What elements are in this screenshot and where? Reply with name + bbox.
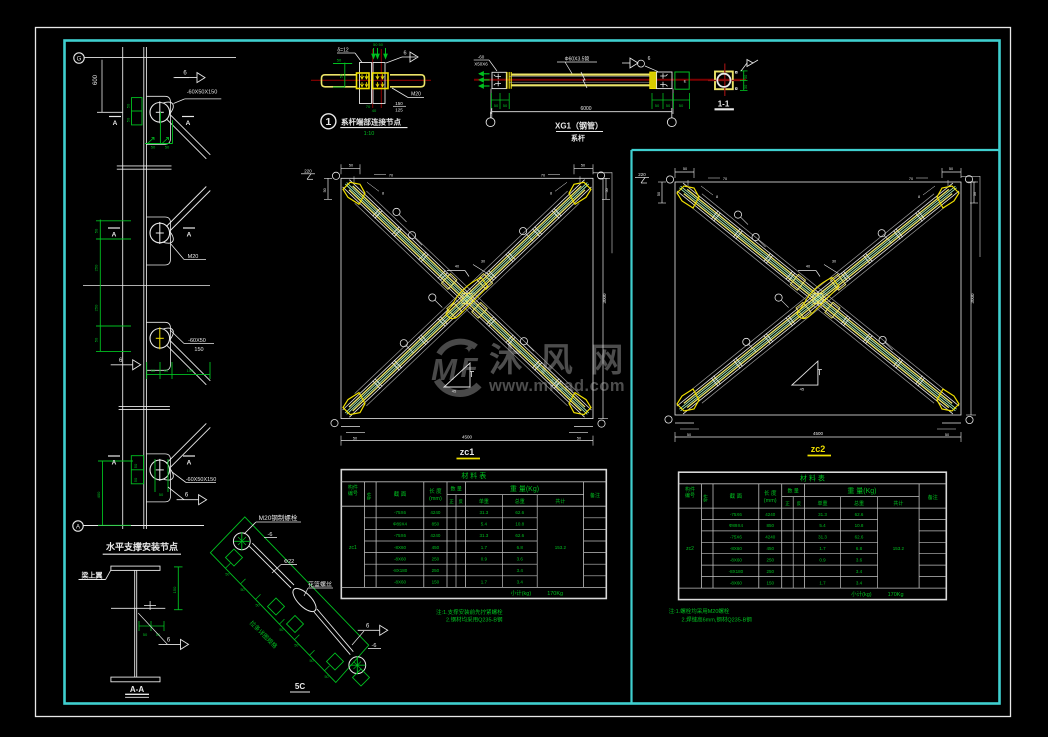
svg-text:正: 正 (449, 499, 454, 504)
svg-text:1:10: 1:10 (364, 131, 375, 137)
svg-text:31.3: 31.3 (818, 512, 827, 517)
svg-text:梁上翼: 梁上翼 (81, 571, 103, 580)
svg-text:E: E (684, 79, 687, 84)
svg-text:系杆端部连接节点: 系杆端部连接节点 (341, 116, 401, 126)
svg-text:X50X6: X50X6 (474, 62, 488, 67)
svg-text:50: 50 (657, 192, 661, 196)
svg-text:3.6: 3.6 (517, 556, 524, 561)
svg-text:截 面: 截 面 (394, 490, 407, 498)
svg-text:31.3: 31.3 (480, 533, 489, 538)
svg-text:数 量: 数 量 (451, 486, 462, 493)
svg-text:250: 250 (94, 304, 99, 311)
svg-text:水平支撑安装节点: 水平支撑安装节点 (106, 541, 178, 552)
svg-text:150: 150 (194, 347, 203, 353)
svg-text:小计(kg): 小计(kg) (511, 589, 532, 597)
svg-text:70: 70 (723, 177, 727, 181)
svg-text:共计: 共计 (555, 498, 565, 505)
svg-text:150: 150 (766, 580, 774, 585)
svg-text:50: 50 (241, 588, 245, 592)
svg-text:150: 150 (172, 586, 177, 593)
svg-text:6000: 6000 (580, 106, 591, 112)
svg-text:3.4: 3.4 (856, 580, 863, 585)
svg-text:M20钢制螺栓: M20钢制螺栓 (259, 513, 298, 522)
svg-text:零件: 零件 (702, 494, 708, 502)
svg-text:Φ89X4: Φ89X4 (729, 523, 744, 528)
svg-text:50: 50 (581, 163, 585, 167)
svg-text:总重: 总重 (854, 500, 864, 507)
svg-text:Φ60X3.5管: Φ60X3.5管 (565, 56, 590, 63)
svg-text:3.6: 3.6 (856, 557, 863, 562)
svg-text:总重: 总重 (515, 498, 525, 505)
svg-text:材 料 表: 材 料 表 (461, 471, 486, 480)
svg-text:170Kg: 170Kg (888, 592, 904, 598)
svg-text:构件: 构件 (685, 486, 695, 493)
svg-text:1-1: 1-1 (718, 100, 730, 109)
svg-text:反: 反 (459, 498, 464, 505)
svg-text:Φ89X4: Φ89X4 (393, 522, 408, 527)
svg-text:小计(kg): 小计(kg) (851, 590, 872, 598)
svg-text:50: 50 (159, 492, 164, 497)
svg-text:30: 30 (481, 260, 485, 264)
svg-text:XG1（钢管）: XG1（钢管） (555, 121, 603, 131)
svg-text:5.4: 5.4 (481, 522, 488, 527)
svg-text:-8X60: -8X60 (730, 557, 743, 562)
svg-text:4240: 4240 (765, 535, 776, 540)
svg-text:8: 8 (918, 195, 920, 199)
svg-text:50: 50 (353, 437, 357, 441)
svg-text:zc2: zc2 (811, 444, 826, 454)
svg-text:-8X60: -8X60 (394, 556, 407, 561)
svg-text:6: 6 (648, 56, 651, 62)
svg-text:50: 50 (973, 192, 977, 196)
svg-text:单重: 单重 (479, 498, 489, 505)
svg-text:50: 50 (151, 368, 156, 373)
svg-text:截 面: 截 面 (730, 492, 743, 500)
svg-text:注:1.螺栓均采用M20螺栓: 注:1.螺栓均采用M20螺栓 (669, 607, 730, 615)
svg-text:450: 450 (766, 546, 774, 551)
svg-text:4240: 4240 (765, 512, 776, 517)
svg-text:备注: 备注 (928, 494, 938, 501)
svg-text:150: 150 (395, 101, 403, 106)
svg-text:1.7: 1.7 (819, 546, 826, 551)
svg-text:-8X180: -8X180 (393, 568, 408, 573)
svg-text:50: 50 (655, 103, 660, 108)
svg-text:50: 50 (126, 103, 131, 108)
svg-text:构件: 构件 (348, 484, 358, 491)
svg-text:220: 220 (304, 168, 312, 173)
svg-text:M20: M20 (411, 92, 421, 98)
svg-text:50: 50 (349, 163, 353, 167)
svg-text:反: 反 (797, 500, 802, 507)
svg-text:-60: -60 (478, 55, 485, 60)
svg-text:62.6: 62.6 (515, 510, 524, 515)
svg-text:50: 50 (666, 103, 671, 108)
svg-text:4240: 4240 (430, 533, 441, 538)
svg-text:8: 8 (382, 191, 384, 195)
svg-text:1: 1 (325, 116, 331, 128)
svg-text:62.6: 62.6 (515, 533, 524, 538)
svg-text:系杆: 系杆 (571, 134, 585, 143)
svg-text:30: 30 (832, 260, 836, 264)
svg-text:50: 50 (133, 463, 138, 468)
svg-text:50: 50 (126, 117, 131, 122)
svg-text:编号: 编号 (348, 490, 358, 497)
svg-text:-8X60: -8X60 (730, 580, 743, 585)
svg-text:10.8: 10.8 (515, 522, 524, 527)
svg-text:编号: 编号 (685, 492, 695, 499)
svg-text:A: A (113, 120, 118, 127)
svg-text:50: 50 (279, 628, 283, 632)
svg-text:50: 50 (679, 103, 684, 108)
svg-text:6.8: 6.8 (517, 545, 524, 550)
svg-text:50: 50 (310, 659, 314, 663)
svg-text:50: 50 (133, 477, 138, 482)
svg-text:3.4: 3.4 (517, 568, 524, 573)
svg-text:0.9: 0.9 (481, 556, 488, 561)
svg-text:50: 50 (94, 337, 99, 342)
svg-text:正: 正 (785, 501, 790, 506)
svg-text:5C: 5C (295, 682, 305, 691)
svg-text:单重: 单重 (817, 500, 827, 507)
svg-text:150: 150 (432, 580, 440, 585)
svg-text:A: A (187, 460, 192, 467)
svg-text:数 量: 数 量 (788, 488, 799, 495)
svg-text:F: F (460, 352, 478, 383)
svg-text:45: 45 (452, 389, 457, 394)
svg-text:注:1.支撑安装前先拧紧螺栓: 注:1.支撑安装前先拧紧螺栓 (436, 608, 503, 616)
svg-text:62.6: 62.6 (855, 535, 864, 540)
svg-text:(mm): (mm) (429, 496, 442, 502)
svg-text:A: A (186, 120, 191, 127)
svg-text:3.4: 3.4 (856, 569, 863, 574)
svg-text:重 量(Kg): 重 量(Kg) (510, 485, 539, 493)
svg-text:600: 600 (93, 74, 99, 85)
svg-text:70: 70 (366, 104, 371, 109)
svg-text:50 50: 50 50 (373, 42, 384, 47)
svg-text:170Kg: 170Kg (547, 591, 563, 597)
svg-text:220: 220 (638, 172, 646, 177)
svg-text:153.2: 153.2 (555, 545, 567, 550)
svg-text:50: 50 (683, 167, 687, 171)
svg-text:1.7: 1.7 (481, 545, 488, 550)
svg-text:400: 400 (96, 491, 101, 498)
svg-text:M: M (431, 352, 458, 387)
svg-text:3000: 3000 (970, 293, 975, 304)
svg-text:A: A (76, 524, 80, 530)
svg-text:50: 50 (337, 58, 342, 63)
svg-text:8: 8 (716, 195, 718, 199)
svg-text:50: 50 (94, 228, 99, 233)
svg-text:50: 50 (323, 188, 327, 192)
svg-text:40: 40 (372, 108, 377, 113)
svg-text:重 量(Kg): 重 量(Kg) (847, 487, 876, 495)
svg-text:50: 50 (294, 644, 298, 648)
svg-text:50: 50 (164, 368, 169, 373)
svg-text:50: 50 (577, 437, 581, 441)
svg-text:4240: 4240 (430, 510, 441, 515)
svg-text:-75X6: -75X6 (394, 533, 407, 538)
svg-text:30: 30 (743, 74, 748, 79)
svg-text:153.2: 153.2 (893, 546, 905, 551)
svg-text:4500: 4500 (462, 435, 473, 440)
svg-text:3.4: 3.4 (517, 580, 524, 585)
svg-text:70: 70 (389, 173, 393, 177)
svg-text:共计: 共计 (893, 500, 903, 507)
svg-text:0.9: 0.9 (819, 557, 826, 562)
svg-text:40: 40 (806, 265, 810, 269)
svg-text:850: 850 (432, 522, 440, 527)
svg-text:(mm): (mm) (764, 498, 777, 504)
svg-text:-8X60: -8X60 (394, 545, 407, 550)
svg-text:850: 850 (766, 523, 774, 528)
svg-text:6.8: 6.8 (856, 546, 863, 551)
svg-text:-60X50X150: -60X50X150 (187, 90, 218, 96)
svg-text:零件: 零件 (365, 492, 371, 500)
svg-text:材 料 表: 材 料 表 (800, 474, 825, 483)
svg-text:-75X6: -75X6 (730, 535, 743, 540)
svg-text:70: 70 (909, 177, 913, 181)
svg-text:zc1: zc1 (460, 447, 475, 457)
svg-text:zc1: zc1 (349, 545, 357, 551)
svg-text:50: 50 (687, 433, 691, 437)
svg-text:zc2: zc2 (686, 546, 694, 552)
svg-text:250: 250 (94, 264, 99, 271)
svg-text:A: A (187, 232, 192, 239)
svg-text:A: A (112, 232, 117, 239)
svg-text:50: 50 (256, 603, 260, 607)
svg-text:G: G (77, 56, 82, 62)
svg-text:4500: 4500 (813, 431, 824, 436)
svg-text:✦: ✦ (464, 341, 475, 356)
svg-text:250: 250 (432, 556, 440, 561)
svg-text:250: 250 (432, 568, 440, 573)
svg-text:长 度: 长 度 (764, 489, 777, 497)
svg-text:备注: 备注 (590, 492, 600, 499)
svg-text:62.6: 62.6 (855, 512, 864, 517)
svg-text:50: 50 (225, 572, 229, 576)
svg-text:150: 150 (187, 368, 194, 373)
svg-text:50: 50 (143, 632, 148, 637)
svg-text:A: A (112, 460, 117, 467)
svg-text:-8X180: -8X180 (729, 569, 744, 574)
svg-text:70: 70 (541, 173, 545, 177)
svg-text:10.8: 10.8 (855, 523, 864, 528)
svg-text:3000: 3000 (602, 293, 607, 304)
svg-text:长 度: 长 度 (429, 487, 442, 495)
svg-text:50: 50 (325, 675, 329, 679)
svg-text:50: 50 (605, 188, 609, 192)
svg-text:50: 50 (151, 145, 156, 150)
svg-text:2.焊缝高6mm,钢材Q235-B钢: 2.焊缝高6mm,钢材Q235-B钢 (682, 616, 753, 624)
svg-text:450: 450 (432, 545, 440, 550)
svg-text:8: 8 (550, 191, 552, 195)
svg-text:1.7: 1.7 (481, 580, 488, 585)
svg-text:45: 45 (800, 387, 805, 392)
svg-text:6: 6 (403, 51, 406, 57)
svg-text:5.4: 5.4 (819, 523, 826, 528)
svg-text:沐风网: 沐风网 (489, 341, 641, 378)
svg-text:31.3: 31.3 (480, 510, 489, 515)
svg-text:-75X6: -75X6 (394, 510, 407, 515)
svg-text:125: 125 (395, 108, 403, 113)
svg-text:30: 30 (743, 84, 748, 89)
svg-text:50: 50 (494, 103, 499, 108)
svg-text:31.3: 31.3 (818, 535, 827, 540)
svg-text:-8X60: -8X60 (394, 580, 407, 585)
svg-text:250: 250 (766, 569, 774, 574)
svg-text:-75X6: -75X6 (730, 512, 743, 517)
svg-text:-8X60: -8X60 (730, 546, 743, 551)
svg-text:花篮螺丝: 花篮螺丝 (308, 581, 332, 589)
svg-text:A-A: A-A (130, 685, 144, 694)
svg-text:2.钢材均采用Q235-B钢: 2.钢材均采用Q235-B钢 (446, 616, 503, 624)
svg-text:250: 250 (766, 557, 774, 562)
svg-text:50: 50 (945, 433, 949, 437)
svg-text:40: 40 (455, 265, 459, 269)
svg-text:50: 50 (165, 145, 170, 150)
svg-text:50: 50 (949, 167, 953, 171)
svg-text:50: 50 (503, 103, 508, 108)
svg-text:50: 50 (339, 73, 344, 78)
svg-text:1.7: 1.7 (819, 580, 826, 585)
